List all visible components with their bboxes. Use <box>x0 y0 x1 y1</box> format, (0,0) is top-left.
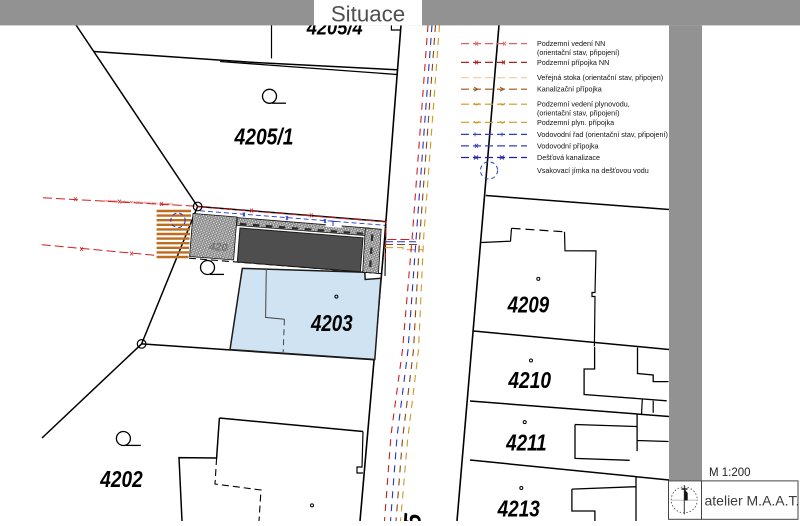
svg-text:Vodovodní řad (orientační stav: Vodovodní řad (orientační stav, připojen… <box>537 130 668 139</box>
svg-text:Podzemní vedení NN: Podzemní vedení NN <box>537 39 605 48</box>
svg-text:Situace: Situace <box>331 1 405 26</box>
svg-text:M 1:200: M 1:200 <box>709 467 751 479</box>
svg-text:(orientační stav, připojení): (orientační stav, připojení) <box>537 48 620 57</box>
svg-text:4210: 4210 <box>508 367 552 393</box>
svg-text:4209: 4209 <box>507 292 549 318</box>
svg-text:Podzemní přípojka NN: Podzemní přípojka NN <box>537 58 609 67</box>
svg-text:Veřejná stoka (orientační stav: Veřejná stoka (orientační stav, připojen… <box>537 73 663 82</box>
svg-text:420: 420 <box>208 241 229 254</box>
svg-text:Podzemní vedení plynovodu,: Podzemní vedení plynovodu, <box>537 100 630 109</box>
svg-text:Dešťová kanalizace: Dešťová kanalizace <box>537 153 600 162</box>
svg-text:4205/1: 4205/1 <box>234 124 294 150</box>
svg-text:4203: 4203 <box>310 310 353 336</box>
svg-text:Kanalizační přípojka: Kanalizační přípojka <box>537 85 602 94</box>
svg-text:Vsakovací jímka na dešťovou vo: Vsakovací jímka na dešťovou vodu <box>537 166 649 175</box>
svg-text:(orientační stav, připojení): (orientační stav, připojení) <box>537 109 620 118</box>
svg-text:4211: 4211 <box>505 430 546 456</box>
svg-text:Podzemní plyn. přípojka: Podzemní plyn. přípojka <box>537 118 614 127</box>
svg-text:Vodovodní přípojka: Vodovodní přípojka <box>537 141 599 150</box>
svg-text:4213: 4213 <box>497 496 540 522</box>
svg-text:atelier M.A.A.T.: atelier M.A.A.T. <box>705 493 800 509</box>
svg-text:4202: 4202 <box>99 466 142 492</box>
